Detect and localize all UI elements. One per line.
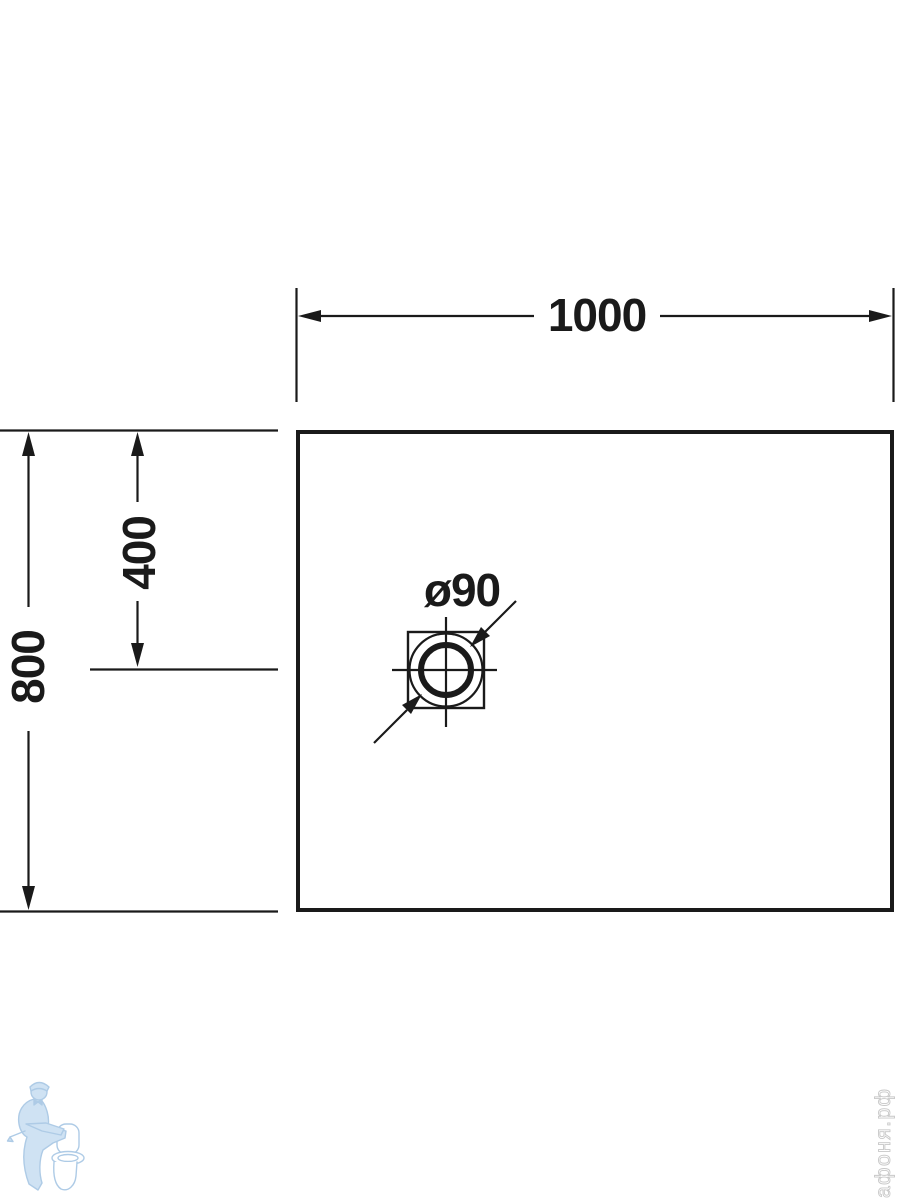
arrowhead-left-icon: [298, 310, 321, 322]
plumber-logo-watermark-icon: [8, 1083, 85, 1191]
shower-tray-diagram: 1000 800 400 ø90: [0, 0, 900, 1200]
arrowhead-right-icon: [869, 310, 892, 322]
arrowhead-down-icon: [22, 886, 35, 910]
diameter-leader-lower: [374, 710, 407, 743]
arrowhead-down-icon: [131, 643, 144, 667]
arrowhead-up-icon: [131, 432, 144, 456]
dim-label-drain-diameter: ø90: [424, 564, 500, 616]
toilet-pedestal-icon: [54, 1162, 77, 1190]
dim-label-width: 1000: [548, 289, 646, 341]
arrowhead-up-icon: [22, 432, 35, 456]
dim-label-drain-offset: 400: [113, 516, 165, 590]
site-watermark-text: афоня.рф: [872, 1088, 895, 1198]
tray-outline-rect: [298, 432, 892, 910]
plunger-cup-icon: [8, 1137, 14, 1142]
dim-label-height: 800: [2, 630, 54, 704]
drain-symbol: [374, 601, 516, 743]
drawing-canvas: 1000 800 400 ø90: [0, 0, 900, 1200]
